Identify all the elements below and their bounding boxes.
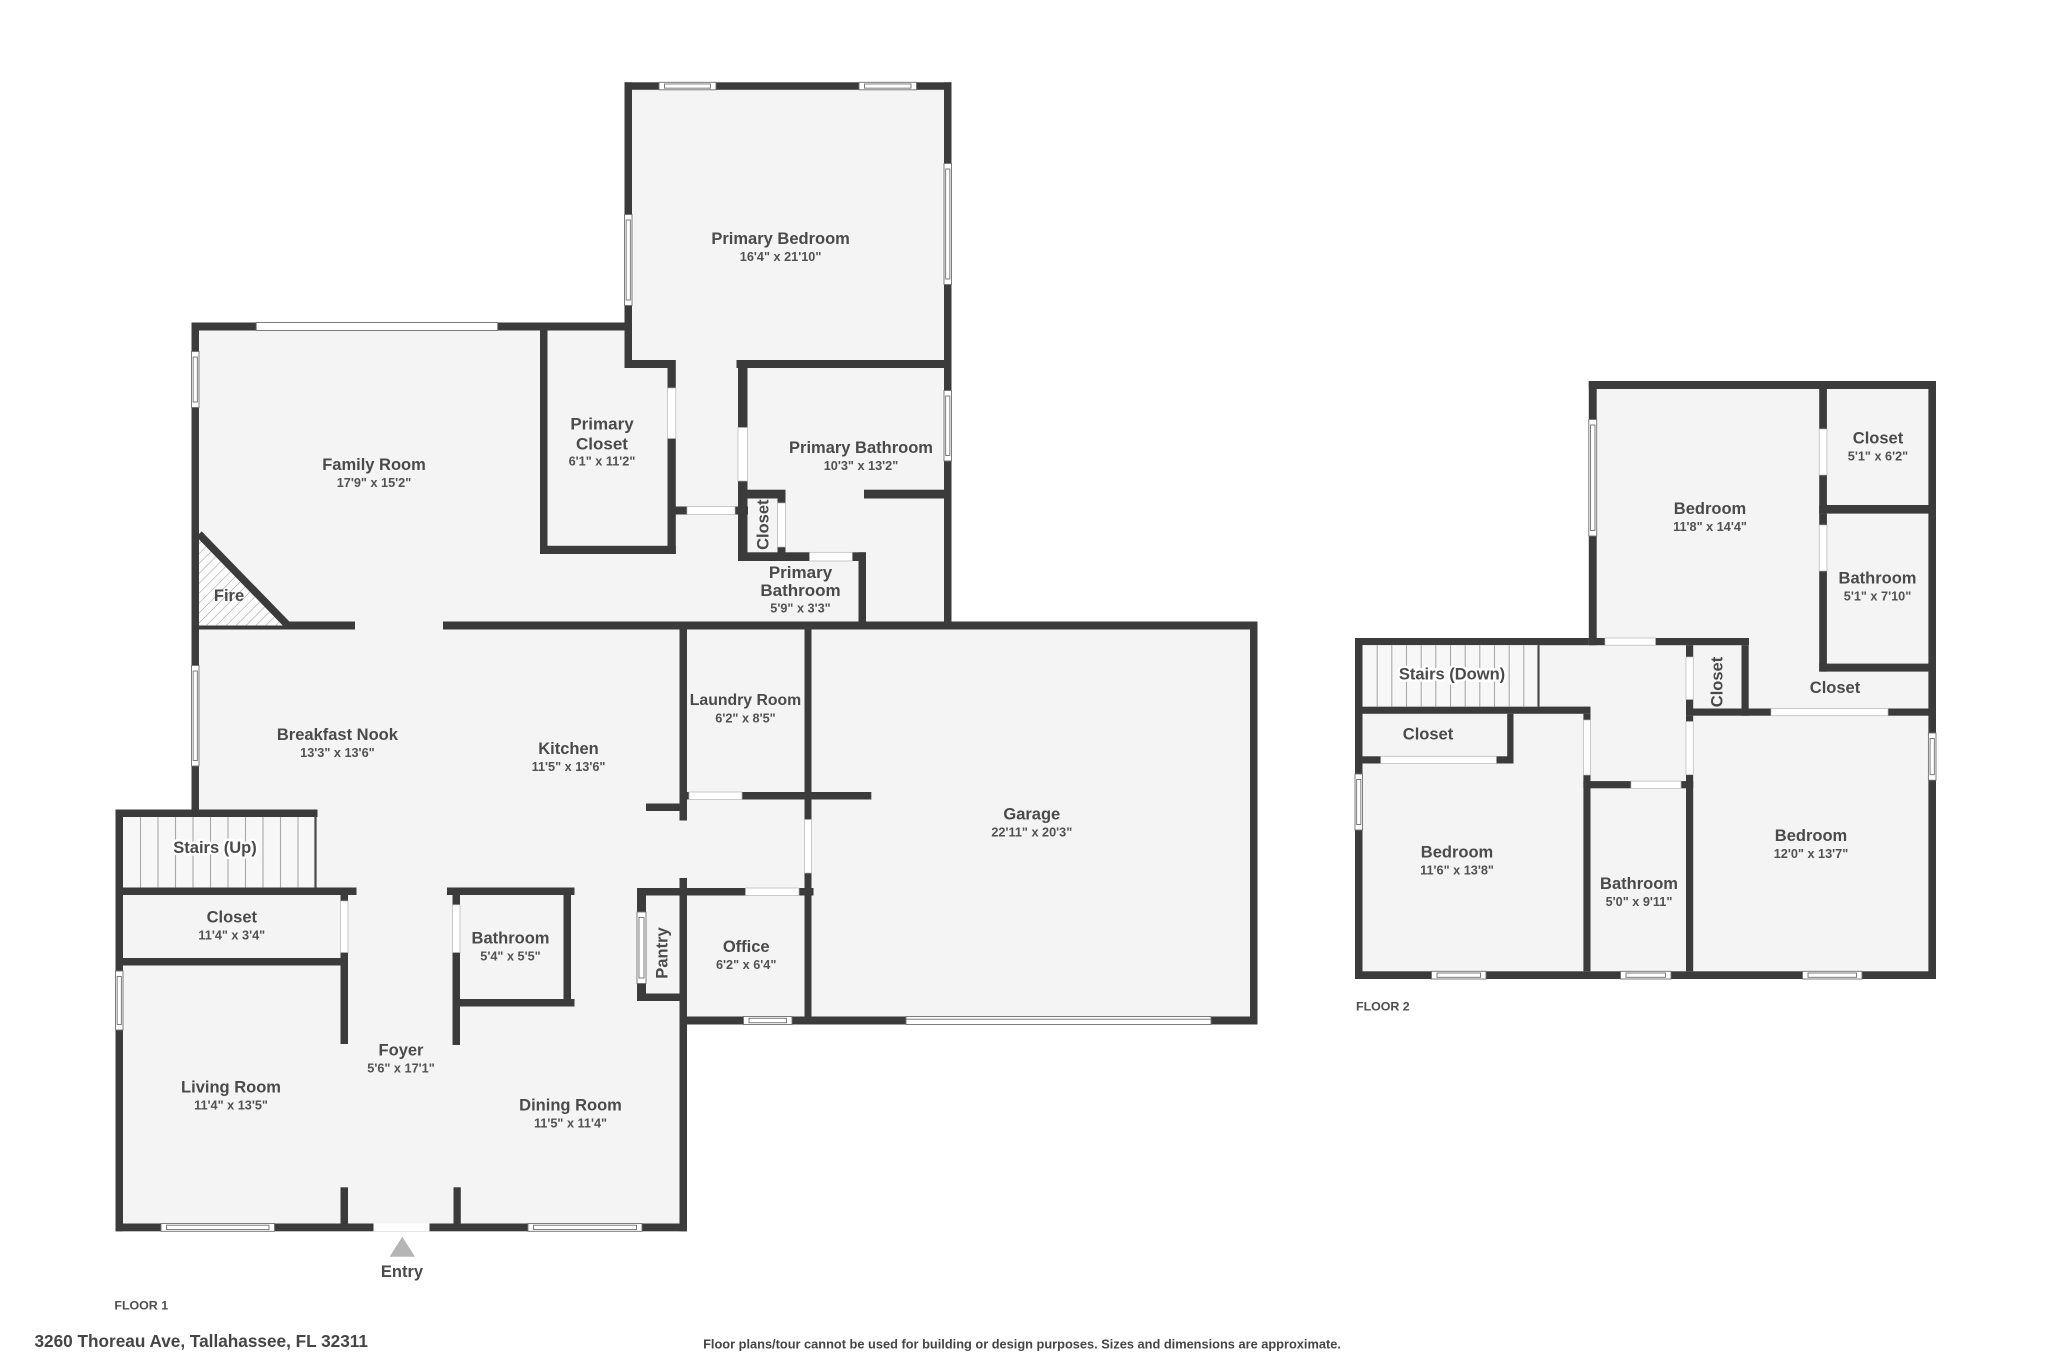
svg-text:Fire: Fire <box>214 587 244 605</box>
svg-text:12'0" x 13'7": 12'0" x 13'7" <box>1774 847 1849 861</box>
svg-text:11'4" x 3'4": 11'4" x 3'4" <box>198 928 265 942</box>
svg-text:5'9" x 3'3": 5'9" x 3'3" <box>770 602 830 616</box>
svg-text:Bedroom: Bedroom <box>1775 827 1847 845</box>
svg-text:16'4" x 21'10": 16'4" x 21'10" <box>740 250 822 264</box>
svg-text:6'2" x 8'5": 6'2" x 8'5" <box>715 712 775 726</box>
svg-text:Primary: Primary <box>769 563 833 582</box>
svg-text:Stairs (Down): Stairs (Down) <box>1399 666 1505 684</box>
svg-text:Family Room: Family Room <box>322 456 426 474</box>
svg-text:Living Room: Living Room <box>181 1079 281 1097</box>
svg-text:FLOOR 1: FLOOR 1 <box>114 1298 168 1312</box>
svg-text:11'8" x 14'4": 11'8" x 14'4" <box>1673 520 1747 534</box>
svg-text:Closet: Closet <box>1853 430 1904 448</box>
svg-text:5'1" x 6'2": 5'1" x 6'2" <box>1848 450 1908 464</box>
svg-text:Closet: Closet <box>207 908 258 926</box>
svg-text:Floor plans/tour cannot be use: Floor plans/tour cannot be used for buil… <box>703 1337 1341 1352</box>
svg-text:11'5" x 11'4": 11'5" x 11'4" <box>534 1117 607 1131</box>
svg-text:Bedroom: Bedroom <box>1674 500 1746 518</box>
svg-text:Bathroom: Bathroom <box>472 930 550 948</box>
svg-text:Primary Bedroom: Primary Bedroom <box>711 230 849 248</box>
svg-text:Garage: Garage <box>1003 805 1060 823</box>
svg-text:Dining Room: Dining Room <box>519 1097 622 1115</box>
svg-text:Closet: Closet <box>1403 726 1454 744</box>
svg-text:5'6" x 17'1": 5'6" x 17'1" <box>367 1062 434 1076</box>
svg-text:Laundry Room: Laundry Room <box>690 692 801 709</box>
svg-text:22'11" x 20'3": 22'11" x 20'3" <box>991 825 1072 839</box>
svg-text:11'6" x 13'8": 11'6" x 13'8" <box>1420 864 1494 878</box>
svg-text:5'0" x 9'11": 5'0" x 9'11" <box>1606 895 1673 909</box>
svg-text:Primary Bathroom: Primary Bathroom <box>789 439 933 457</box>
svg-text:11'4" x 13'5": 11'4" x 13'5" <box>194 1099 268 1113</box>
svg-text:11'5" x 13'6": 11'5" x 13'6" <box>532 760 606 774</box>
svg-text:Closet: Closet <box>1810 679 1861 697</box>
svg-text:Stairs (Up): Stairs (Up) <box>173 839 256 857</box>
svg-text:13'3" x 13'6": 13'3" x 13'6" <box>300 746 375 760</box>
svg-text:17'9" x 15'2": 17'9" x 15'2" <box>337 476 412 490</box>
svg-text:Foyer: Foyer <box>379 1042 425 1060</box>
svg-text:3260 Thoreau Ave, Tallahassee,: 3260 Thoreau Ave, Tallahassee, FL 32311 <box>35 1331 369 1351</box>
svg-text:Office: Office <box>723 938 770 956</box>
svg-text:6'1" x 11'2": 6'1" x 11'2" <box>569 455 636 469</box>
svg-text:FLOOR 2: FLOOR 2 <box>1356 1000 1410 1014</box>
svg-text:Kitchen: Kitchen <box>538 740 599 758</box>
svg-text:Breakfast Nook: Breakfast Nook <box>277 726 399 744</box>
svg-text:5'4" x 5'5": 5'4" x 5'5" <box>480 950 540 964</box>
svg-text:Primary: Primary <box>570 415 634 434</box>
svg-text:5'1" x 7'10": 5'1" x 7'10" <box>1844 590 1911 604</box>
svg-text:Entry: Entry <box>381 1263 424 1281</box>
svg-text:Closet: Closet <box>576 435 628 454</box>
svg-text:Closet: Closet <box>1709 656 1727 707</box>
svg-text:10'3" x 13'2": 10'3" x 13'2" <box>824 459 899 473</box>
svg-text:Pantry: Pantry <box>654 927 672 979</box>
svg-text:6'2" x 6'4": 6'2" x 6'4" <box>716 958 776 972</box>
svg-text:Bathroom: Bathroom <box>1839 570 1917 588</box>
svg-text:Closet: Closet <box>754 499 772 550</box>
svg-text:Bedroom: Bedroom <box>1421 844 1493 862</box>
svg-text:Bathroom: Bathroom <box>760 581 840 600</box>
svg-text:Bathroom: Bathroom <box>1600 875 1678 893</box>
